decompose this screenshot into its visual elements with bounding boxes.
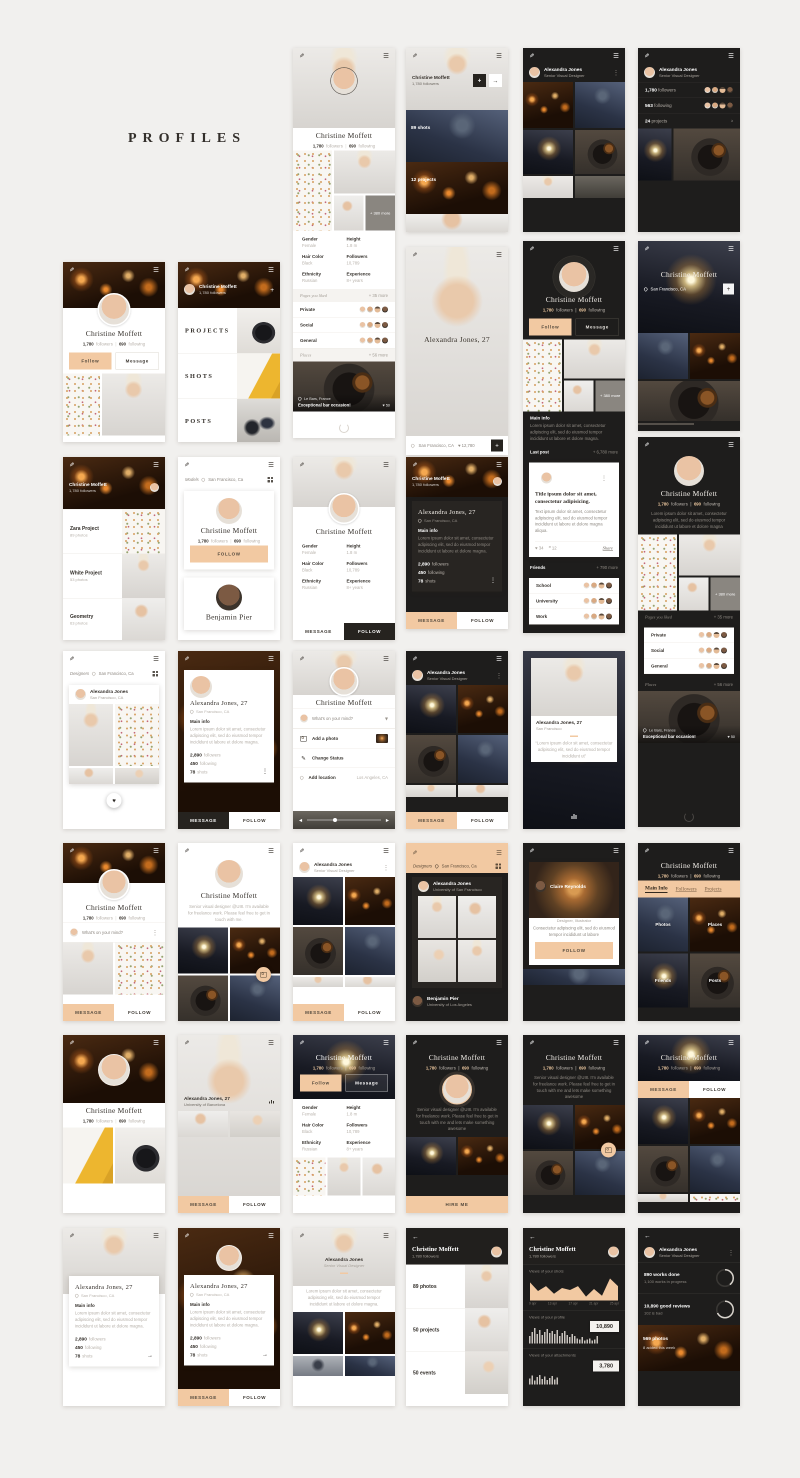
pen-icon[interactable]: ✎ [412, 252, 418, 257]
menu-icon[interactable]: ☰ [153, 1232, 159, 1239]
grid-view-icon[interactable] [268, 477, 274, 483]
arrow-icon[interactable]: → [147, 1352, 153, 1359]
screen-content: ✎☰Christine Moffett1,780followers|690fol… [293, 48, 395, 438]
photo-thumb[interactable]: Places [690, 898, 740, 952]
status-input[interactable]: What's on your mind?⋮ [63, 923, 165, 943]
back-icon[interactable]: ← [529, 1233, 619, 1241]
zara-project-row[interactable]: Zara Project89 photos [63, 509, 165, 554]
mini-avatar [375, 307, 381, 313]
main-info-text: Lorem ipsum dolor sit amet, consectetur … [418, 534, 496, 557]
pen-icon[interactable]: ✎ [69, 656, 75, 661]
follow-button[interactable]: FOLLOW [229, 812, 280, 829]
screen-profile-status: ✎☰Christine Moffett1,780followers|690fol… [63, 843, 165, 1021]
photo-thumb[interactable] [458, 940, 496, 982]
pin-icon [434, 864, 439, 869]
photo-thumb[interactable] [638, 535, 677, 611]
back-icon[interactable]: ← [412, 1233, 502, 1241]
pen-icon[interactable]: ✎ [644, 53, 650, 58]
pen-icon[interactable]: ✎ [299, 1040, 305, 1045]
photo-thumb[interactable] [690, 1146, 740, 1192]
kebab-icon[interactable]: ⋮ [613, 69, 619, 76]
pen-icon[interactable]: ✎ [412, 1040, 418, 1045]
menu-icon[interactable]: ☰ [268, 655, 274, 662]
menu-icon[interactable]: ☰ [153, 266, 159, 273]
list-row-school[interactable]: School [529, 578, 619, 594]
photo-thumb[interactable]: Posts [690, 954, 740, 1008]
photo-spark: ✎☰Christine MoffettSan Francisco, CA+ [638, 241, 740, 333]
add-button[interactable]: + [473, 74, 486, 87]
followers-count: 1,780 [658, 1066, 669, 1071]
pen-icon[interactable]: ✎ [529, 848, 535, 853]
follow-button[interactable]: Follow [529, 319, 572, 336]
photo-thumb[interactable] [523, 340, 562, 412]
add-a-photo-row[interactable]: Add a photo [293, 729, 395, 749]
mini-avatar [606, 613, 612, 619]
photo-thumb[interactable] [293, 877, 343, 925]
follow-button[interactable]: FOLLOW [190, 546, 268, 563]
menu-icon[interactable]: ☰ [613, 847, 619, 854]
photo-thumb[interactable] [690, 1194, 740, 1202]
menu-icon[interactable]: ☰ [153, 1039, 159, 1046]
list-row-general[interactable]: General [293, 333, 395, 349]
mini-avatar [382, 307, 388, 313]
photo-thumb[interactable] [63, 943, 113, 995]
more-photos-tile[interactable]: + 380 more [710, 578, 740, 611]
message-button[interactable]: MESSAGE [178, 812, 229, 829]
back-icon[interactable]: ← [644, 1232, 651, 1239]
avatar-group [699, 648, 728, 654]
add-button[interactable]: + [723, 284, 734, 295]
top-bar: ✎☰ [523, 1035, 625, 1050]
chevron-down-icon[interactable]: ▾ [385, 715, 388, 722]
action-buttons: MESSAGEFOLLOW [293, 1004, 395, 1021]
menu-icon[interactable]: ☰ [496, 52, 502, 59]
menu-icon[interactable]: ☰ [613, 1039, 619, 1046]
photo-thumb[interactable] [178, 928, 228, 974]
more-link[interactable]: + 6,780 more [593, 450, 618, 455]
follow-button[interactable]: FOLLOW [689, 1081, 740, 1098]
mini-avatar [382, 338, 388, 344]
screen-designers-list-dark: ✎☰DesignersSan Francisco, CaAlexandra Jo… [406, 843, 508, 1021]
pen-icon: ✎ [300, 755, 307, 762]
photo-mosaic: + 380 more [293, 151, 395, 231]
feature-photo [122, 554, 165, 598]
photo-thumb[interactable]: Photos [638, 898, 688, 952]
scrollbar[interactable] [638, 423, 694, 425]
pen-icon[interactable]: ✎ [412, 850, 418, 855]
message-button[interactable]: MESSAGE [293, 623, 344, 640]
avatar [608, 1247, 619, 1258]
message-button[interactable]: Message [116, 353, 160, 370]
menu-icon[interactable]: ☰ [383, 52, 389, 59]
pen-icon[interactable]: ✎ [69, 1040, 75, 1045]
pen-icon[interactable]: ✎ [184, 656, 190, 661]
photo-thumb[interactable] [115, 768, 159, 784]
status-input[interactable]: What's on your mind?▾ [293, 709, 395, 729]
change-status-row[interactable]: ✎Change Status [293, 748, 395, 768]
add-button[interactable]: + [491, 440, 503, 452]
pen-icon[interactable]: ✎ [412, 462, 418, 467]
spacer [406, 346, 508, 350]
heart-fab[interactable]: ♥ [107, 793, 122, 808]
photo-thumb[interactable] [328, 1158, 361, 1196]
spacer [406, 63, 508, 70]
screen-content: ✎☰Alexandra JonesSenior Visual Designer⋮… [293, 843, 395, 1021]
follow-button[interactable]: FOLLOW [344, 623, 395, 640]
photo-model2 [406, 214, 508, 232]
profile-name: Christine Moffett [63, 1103, 165, 1117]
89-photos-row[interactable]: 89 photos [406, 1265, 508, 1309]
list-row-24[interactable]: 24 projects› [638, 113, 740, 129]
plus-icon[interactable]: + [270, 286, 274, 293]
row-label: Social [651, 648, 664, 653]
pen-icon[interactable]: ✎ [529, 53, 535, 58]
photo-thumb[interactable] [115, 943, 165, 995]
kebab-icon[interactable]: ⋮ [728, 1249, 734, 1256]
menu-icon[interactable]: ☰ [383, 655, 389, 662]
photo-thumb[interactable] [293, 927, 343, 975]
kebab-icon[interactable]: ⋮ [383, 864, 389, 871]
tab-main-info[interactable]: Main Info [645, 885, 668, 893]
list-row-social[interactable]: Social [644, 643, 734, 659]
photo-thumb[interactable] [679, 535, 740, 576]
pen-icon[interactable]: ✎ [299, 1233, 305, 1238]
photo-thumb[interactable] [575, 130, 625, 174]
pen-icon[interactable]: ✎ [644, 246, 650, 251]
message-button[interactable]: MESSAGE [63, 1004, 114, 1021]
more-link[interactable]: + 35 more [369, 293, 388, 298]
list-row-social[interactable]: Social [293, 318, 395, 334]
photo-thumb[interactable] [523, 130, 573, 174]
share-link[interactable]: Share [603, 546, 613, 551]
spacer [523, 651, 625, 655]
photo-thumb[interactable] [638, 1194, 688, 1202]
detail-value: 8+ years [347, 1147, 387, 1152]
menu-icon[interactable]: ☰ [383, 847, 389, 854]
photo-bulbs: 569 photos8 added this week [638, 1325, 740, 1371]
avatar [98, 293, 131, 326]
pen-icon[interactable]: ✎ [644, 848, 650, 853]
photo-thumb[interactable] [406, 1137, 456, 1175]
photo-thumb[interactable] [673, 129, 740, 181]
photo-thumb[interactable] [523, 176, 573, 198]
message-button[interactable]: MESSAGE [406, 612, 457, 629]
message-button[interactable]: MESSAGE [406, 812, 457, 829]
tab-projects[interactable]: Projects [705, 886, 722, 892]
pen-icon[interactable]: ✎ [412, 656, 418, 661]
message-button[interactable]: MESSAGE [638, 1081, 689, 1098]
photo-thumb[interactable] [334, 196, 364, 231]
user-subtitle: University of San Francisco [433, 888, 482, 893]
photo-thumb[interactable] [230, 976, 280, 1021]
avatar [644, 67, 655, 78]
photo-thumb[interactable] [230, 1111, 280, 1137]
photo-thumb[interactable] [345, 1356, 395, 1376]
photo-thumb[interactable] [690, 333, 740, 379]
photo-thumb[interactable] [334, 151, 395, 194]
kebab-icon[interactable]: ⋮ [152, 929, 158, 936]
message-button[interactable]: MESSAGE [293, 1004, 344, 1021]
message-button[interactable]: Message [576, 319, 620, 336]
pen-icon[interactable]: ✎ [299, 53, 305, 58]
menu-icon[interactable]: ☰ [153, 847, 159, 854]
list-row-private[interactable]: Private [293, 302, 395, 318]
photo-thumb[interactable] [345, 927, 395, 975]
chart-fab[interactable] [567, 809, 582, 824]
photo-thumb[interactable] [458, 1137, 508, 1175]
follow-button[interactable]: FOLLOW [344, 1004, 395, 1021]
menu-icon[interactable]: ☰ [728, 52, 734, 59]
action-buttons: MESSAGEFOLLOW [178, 1389, 280, 1406]
photo-thumb[interactable] [638, 129, 671, 181]
geometry-row[interactable]: Geometry63 photos [63, 598, 165, 640]
projects-row[interactable]: PROJECTS [178, 308, 280, 353]
more-photos-tile[interactable]: + 380 more [595, 380, 625, 411]
progress-knob[interactable] [333, 818, 337, 822]
pen-icon[interactable]: ✎ [529, 1040, 535, 1045]
more-photos-tile[interactable]: + 380 more [365, 196, 395, 231]
progress-track[interactable] [307, 820, 381, 821]
photo-thumb[interactable] [523, 1151, 573, 1195]
photo-thumb[interactable] [458, 896, 496, 938]
menu-icon[interactable]: ☰ [153, 655, 159, 662]
row-label: General [651, 664, 668, 669]
pen-icon[interactable]: ✎ [644, 442, 650, 447]
pen-icon[interactable]: ✎ [299, 848, 305, 853]
pen-icon[interactable]: ✎ [184, 462, 190, 467]
hire-me-button[interactable]: HIRE ME [406, 1196, 508, 1213]
photo-grid [638, 1098, 740, 1202]
message-button[interactable]: MESSAGE [178, 1196, 229, 1213]
message-button[interactable]: MESSAGE [178, 1389, 229, 1406]
follow-button[interactable]: FOLLOW [457, 812, 508, 829]
detail-followers: Followers10,789 [347, 561, 387, 573]
photo-thumb[interactable]: Friends [638, 954, 688, 1008]
avatar [535, 881, 546, 892]
photo-thumb[interactable] [523, 1105, 573, 1149]
photo-thumb[interactable] [458, 685, 508, 733]
profile-name: Christine Moffett [293, 1050, 395, 1064]
follow-button[interactable]: FOLLOW [457, 612, 508, 629]
mini-avatar [721, 632, 727, 638]
kebab-icon[interactable]: ⋮ [262, 768, 268, 775]
photo-thumb[interactable] [69, 704, 113, 766]
menu-icon[interactable]: ☰ [496, 849, 502, 856]
pen-icon[interactable]: ✎ [529, 246, 535, 251]
photo-thumb[interactable] [418, 940, 456, 982]
follow-button[interactable]: Follow [69, 353, 112, 370]
screen-content: ✎☰Christine Moffett1,780followers|690fol… [63, 262, 165, 442]
list-row-work[interactable]: Work [529, 609, 619, 625]
photo-thumb[interactable] [564, 380, 594, 411]
photo-thumb[interactable] [293, 1312, 343, 1354]
list-row-general[interactable]: General [644, 659, 734, 675]
more-link[interactable]: + 56 more [369, 353, 388, 358]
photo-thumb[interactable] [575, 176, 625, 198]
photo-thumb[interactable] [115, 1128, 165, 1184]
photo-thumb[interactable] [458, 785, 508, 797]
detail-label: Hair Color [302, 254, 342, 259]
menu-icon[interactable]: ☰ [153, 461, 159, 468]
photo-thumb[interactable] [345, 977, 395, 987]
more-link[interactable]: + 35 more [714, 615, 733, 620]
50-events-row[interactable]: 50 events [406, 1352, 508, 1395]
pen-icon[interactable]: ✎ [69, 848, 75, 853]
photo-thumb[interactable] [63, 374, 100, 436]
photo-thumb[interactable] [230, 928, 280, 974]
photo-thumb[interactable] [406, 785, 456, 797]
top-bar: ✎☰ [406, 651, 508, 666]
post-meta: ♥ 34❝ 12Share [535, 541, 613, 551]
location: San Francisco, CA [190, 709, 268, 717]
profile-name: Christine Moffett [293, 524, 395, 538]
photo-thumb[interactable] [458, 735, 508, 783]
screen-projects-list: ✎☰Christine Moffett1,780 followersZara P… [63, 457, 165, 640]
mini-avatar [714, 648, 720, 654]
photo-thumb[interactable] [575, 1151, 625, 1195]
photo-thumb[interactable] [638, 333, 688, 379]
follow-button[interactable]: FOLLOW [229, 1389, 280, 1406]
kebab-icon[interactable]: ⋮ [496, 672, 502, 679]
follow-button[interactable]: FOLLOW [229, 1196, 280, 1213]
followers-count: 1,780 [83, 1119, 94, 1124]
pen-icon[interactable]: ✎ [69, 267, 75, 272]
photo-thumb[interactable] [178, 1111, 228, 1137]
menu-icon[interactable]: ☰ [268, 847, 274, 854]
grid-view-icon[interactable] [153, 671, 159, 677]
photo-thumb[interactable] [406, 735, 456, 783]
pen-icon[interactable]: ✎ [184, 1040, 190, 1045]
filter-category: Designers [413, 864, 432, 869]
pen-icon[interactable]: ✎ [69, 1233, 75, 1238]
pen-icon[interactable]: ✎ [412, 53, 418, 58]
action-buttons: MESSAGEFOLLOW [63, 1004, 165, 1021]
photo-thumb[interactable] [293, 1356, 343, 1376]
shots-row[interactable]: SHOTS [178, 353, 280, 399]
pen-icon[interactable]: ✎ [184, 267, 190, 272]
detail-hair-color: Hair ColorBlack [302, 561, 342, 573]
filter-location: San Francisco, Ca [99, 671, 134, 676]
menu-icon[interactable]: ☰ [496, 461, 502, 468]
detail-gender: GenderFemale [302, 544, 342, 556]
pen-icon[interactable]: ✎ [299, 462, 305, 467]
follow-button[interactable]: Follow [300, 1075, 342, 1092]
menu-icon[interactable]: ☰ [496, 655, 502, 662]
forward-button[interactable]: → [489, 74, 502, 87]
kebab-icon[interactable]: ⋮ [490, 577, 496, 584]
peach-header: ✎☰DesignersSan Francisco, Ca [406, 843, 508, 873]
menu-icon[interactable]: ☰ [268, 266, 274, 273]
photo-thumb[interactable] [69, 768, 113, 784]
menu-icon[interactable]: ☰ [268, 1232, 274, 1239]
photo-thumb[interactable] [564, 340, 625, 379]
posts-row[interactable]: POSTS [178, 399, 280, 443]
photo-thumb[interactable] [345, 1312, 395, 1354]
photo-thumb[interactable] [638, 381, 740, 421]
photo-thumb[interactable] [638, 1146, 688, 1192]
menu-icon[interactable]: ☰ [496, 251, 502, 258]
menu-icon[interactable]: ☰ [728, 847, 734, 854]
photo-thumb[interactable] [293, 977, 343, 987]
photo-thumb[interactable] [575, 1105, 625, 1149]
followers-count: 1,780 [658, 874, 669, 879]
photo-thumb[interactable] [115, 704, 159, 766]
menu-icon[interactable]: ☰ [268, 1039, 274, 1046]
photo-thumb[interactable] [63, 1128, 113, 1184]
arrow-icon[interactable]: → [262, 1351, 268, 1358]
menu-icon[interactable]: ☰ [613, 245, 619, 252]
photo-thumb[interactable] [178, 976, 228, 1021]
menu-icon[interactable]: ☰ [268, 461, 274, 468]
pen-icon[interactable]: ✎ [184, 1233, 190, 1238]
photo-thumb[interactable] [406, 685, 456, 733]
mini-avatar [706, 663, 712, 669]
photo-thumb[interactable] [293, 1158, 326, 1196]
pen-icon[interactable]: ✎ [644, 1040, 650, 1045]
photo-thumb[interactable] [575, 82, 625, 128]
follower-count: 1,780 followers [412, 1254, 459, 1259]
photo-thumb[interactable] [362, 1158, 395, 1196]
follow-button[interactable]: FOLLOW [114, 1004, 165, 1021]
pen-icon[interactable]: ✎ [69, 462, 75, 467]
menu-icon[interactable]: ☰ [613, 52, 619, 59]
list-row-university[interactable]: University [529, 593, 619, 609]
list-row-1-780[interactable]: 1,780 followers [638, 82, 740, 98]
prev-icon[interactable]: ◀ [299, 818, 302, 823]
photo-thumb[interactable] [523, 82, 573, 128]
list-row-private[interactable]: Private [644, 628, 734, 644]
white-project-row[interactable]: White Project53 photos [63, 554, 165, 599]
50-projects-row[interactable]: 50 projects [406, 1308, 508, 1352]
more-link[interactable]: + 56 more [714, 682, 733, 687]
detail-label: Followers [347, 254, 387, 259]
kebab-icon[interactable]: ⋮ [601, 475, 607, 482]
next-icon[interactable]: ▶ [386, 818, 389, 823]
audio-player[interactable]: ◀▶ [293, 811, 395, 829]
menu-icon[interactable]: ☰ [383, 1232, 389, 1239]
pen-icon[interactable]: ✎ [184, 848, 190, 853]
menu-icon[interactable]: ☰ [728, 245, 734, 252]
menu-icon[interactable]: ☰ [728, 441, 734, 448]
tab-followers[interactable]: Followers [676, 886, 697, 892]
post-title: Title ipsum dolor sit amet, consectetur … [535, 488, 613, 508]
menu-icon[interactable]: ☰ [496, 1039, 502, 1046]
more-link[interactable]: + 790 more [596, 565, 618, 570]
photo-thumb[interactable] [293, 151, 332, 231]
grid-view-icon[interactable] [496, 863, 502, 869]
chart-panel: Views of your attachments3,780 [523, 1349, 625, 1390]
menu-icon[interactable]: ☰ [383, 1039, 389, 1046]
photo-thumb[interactable] [679, 578, 709, 611]
menu-icon[interactable]: ☰ [383, 461, 389, 468]
photo-thumb[interactable] [638, 1098, 688, 1144]
camera-fab[interactable] [601, 1143, 616, 1158]
menu-icon[interactable]: ☰ [728, 1039, 734, 1046]
photo-thumb[interactable] [418, 896, 456, 938]
pen-icon[interactable]: ✎ [299, 656, 305, 661]
feature-title: 50 events [413, 1370, 458, 1376]
feature-photo [237, 308, 280, 353]
photo-thumb[interactable] [690, 1098, 740, 1144]
list-row-563[interactable]: 563 following [638, 98, 740, 114]
follow-button[interactable]: FOLLOW [535, 942, 613, 959]
photo-thumb[interactable] [345, 877, 395, 925]
message-button[interactable]: Message [346, 1075, 389, 1092]
stat-followers: 2,890followers [190, 751, 268, 760]
photo-thumb[interactable] [102, 374, 165, 436]
add-location-row[interactable]: Add locationLos Angeles, CA [293, 768, 395, 788]
feature-title: Geometry [70, 614, 115, 620]
